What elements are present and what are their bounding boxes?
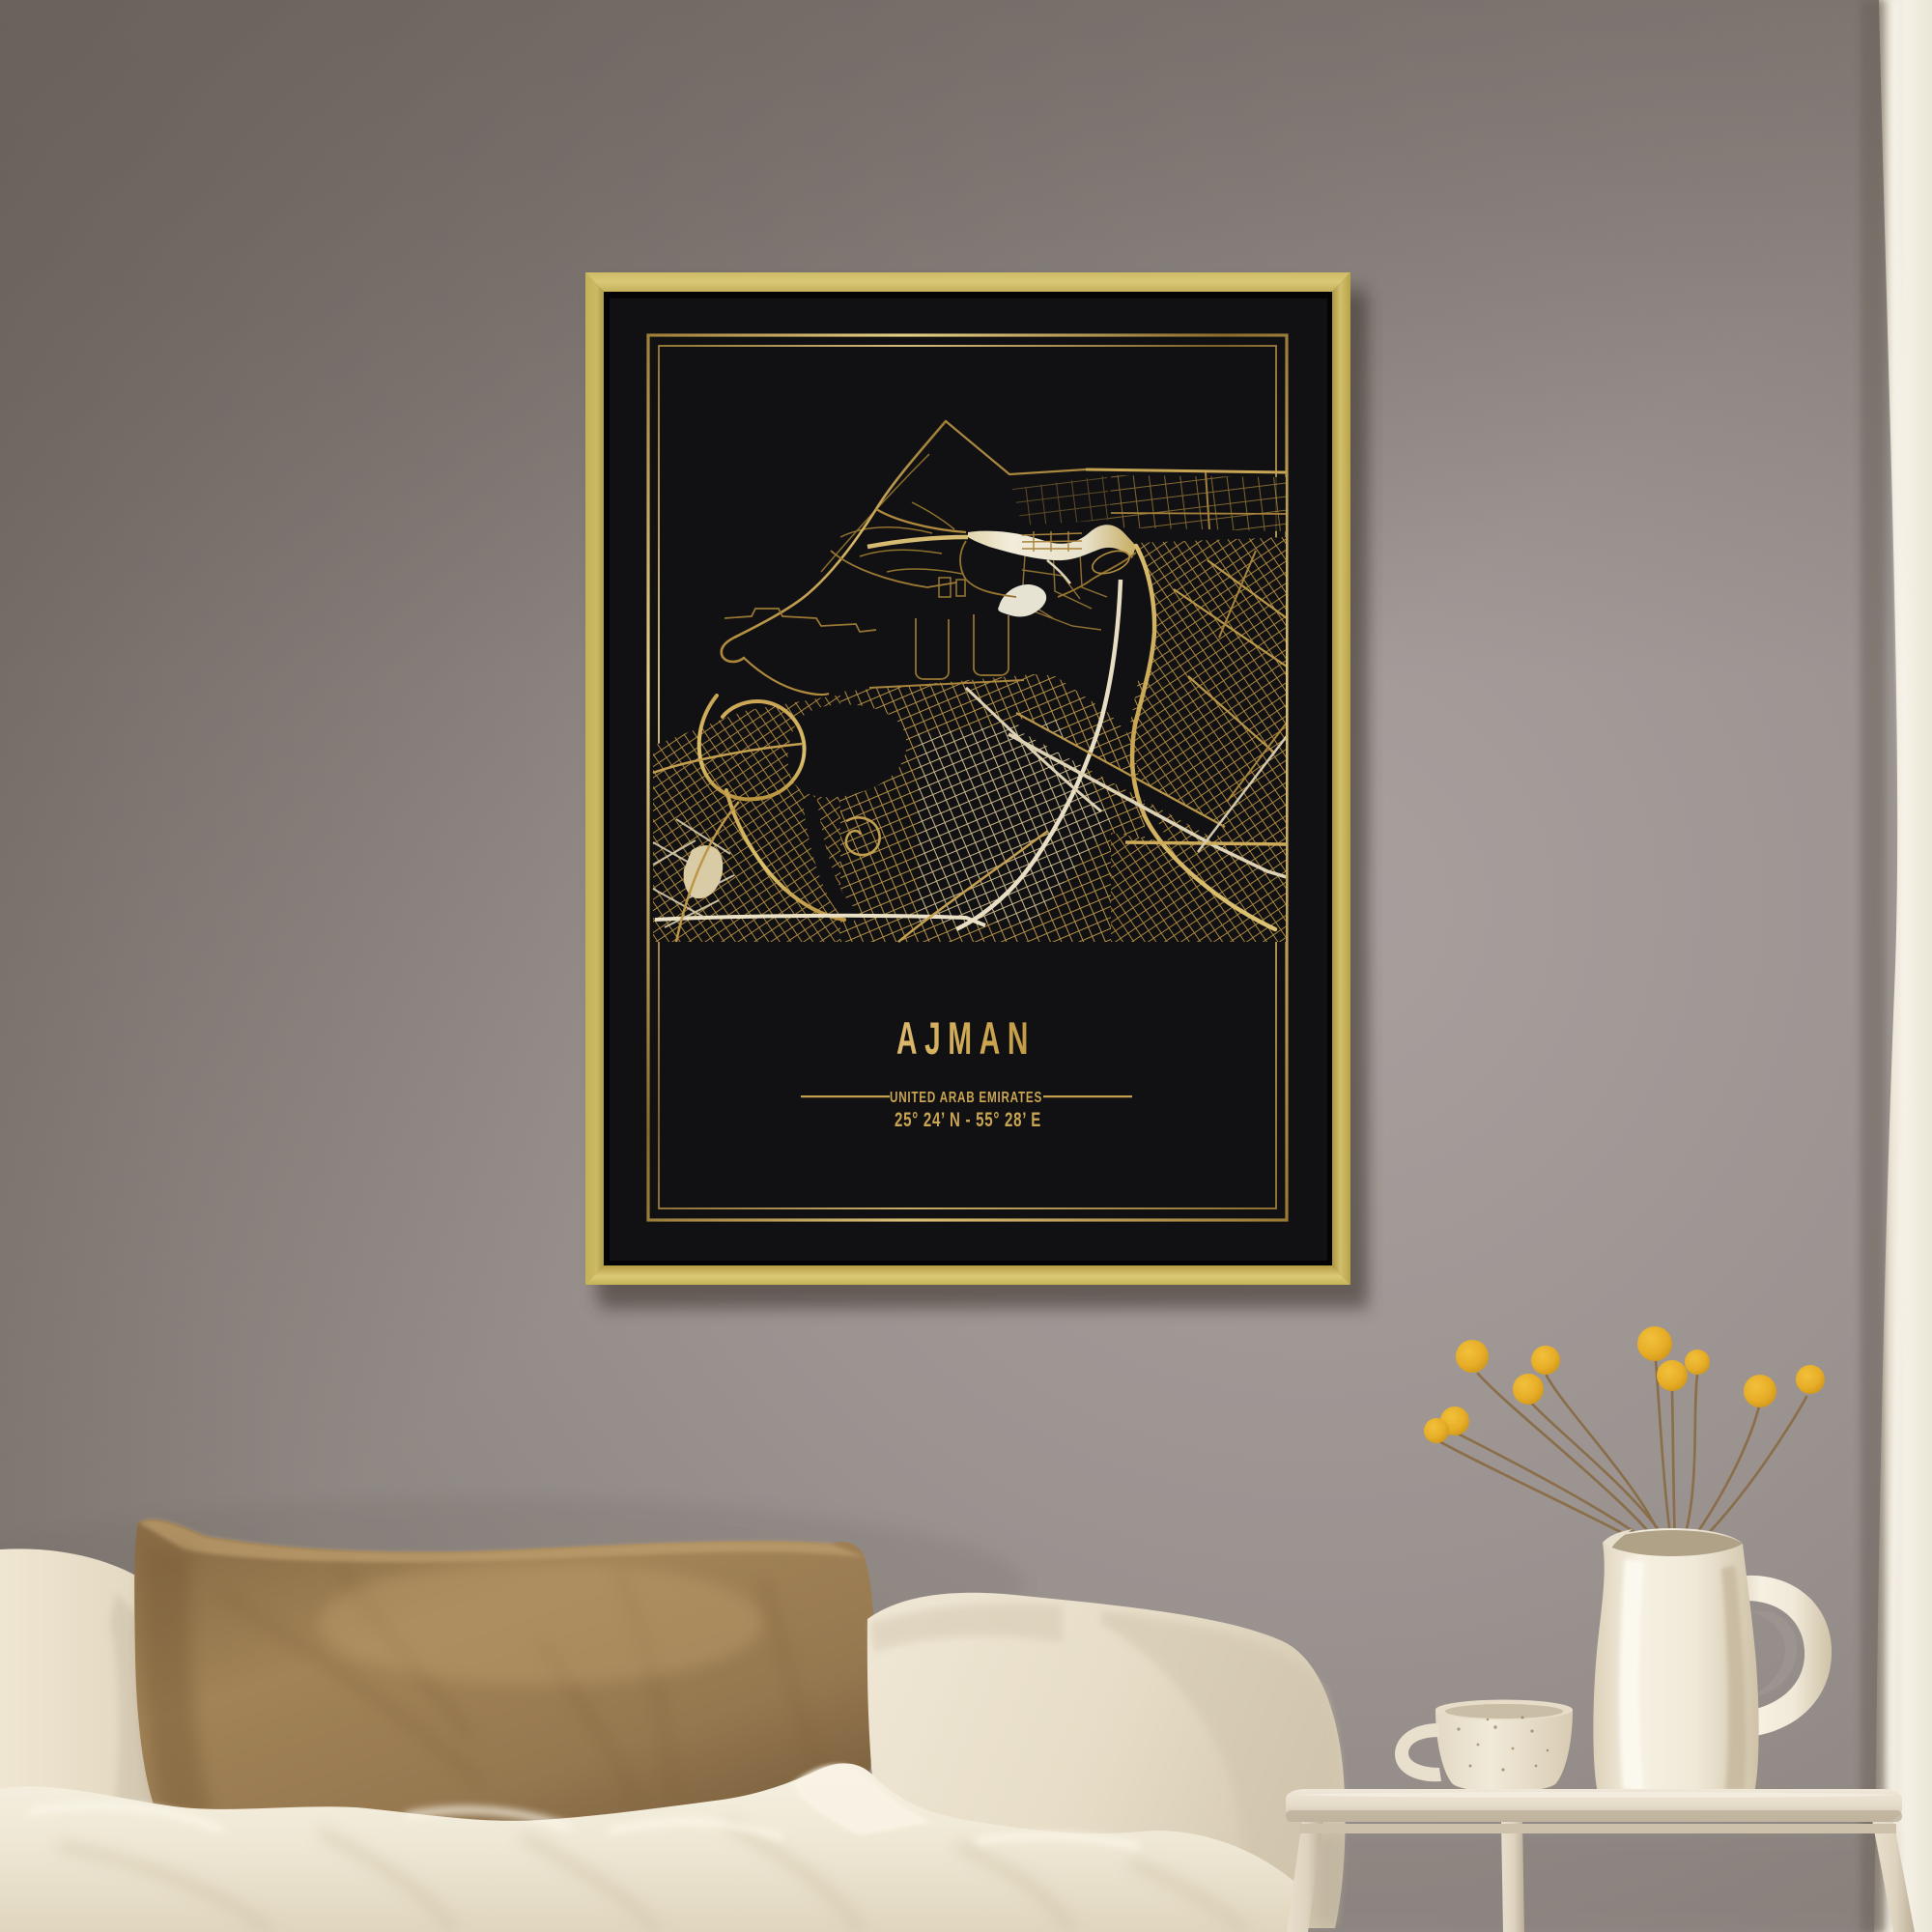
- svg-text:AJMAN: AJMAN: [896, 1012, 1036, 1064]
- svg-text:25° 24’ N - 55° 28’ E: 25° 24’ N - 55° 28’ E: [895, 1109, 1041, 1131]
- svg-text:UNITED ARAB EMIRATES: UNITED ARAB EMIRATES: [890, 1090, 1042, 1106]
